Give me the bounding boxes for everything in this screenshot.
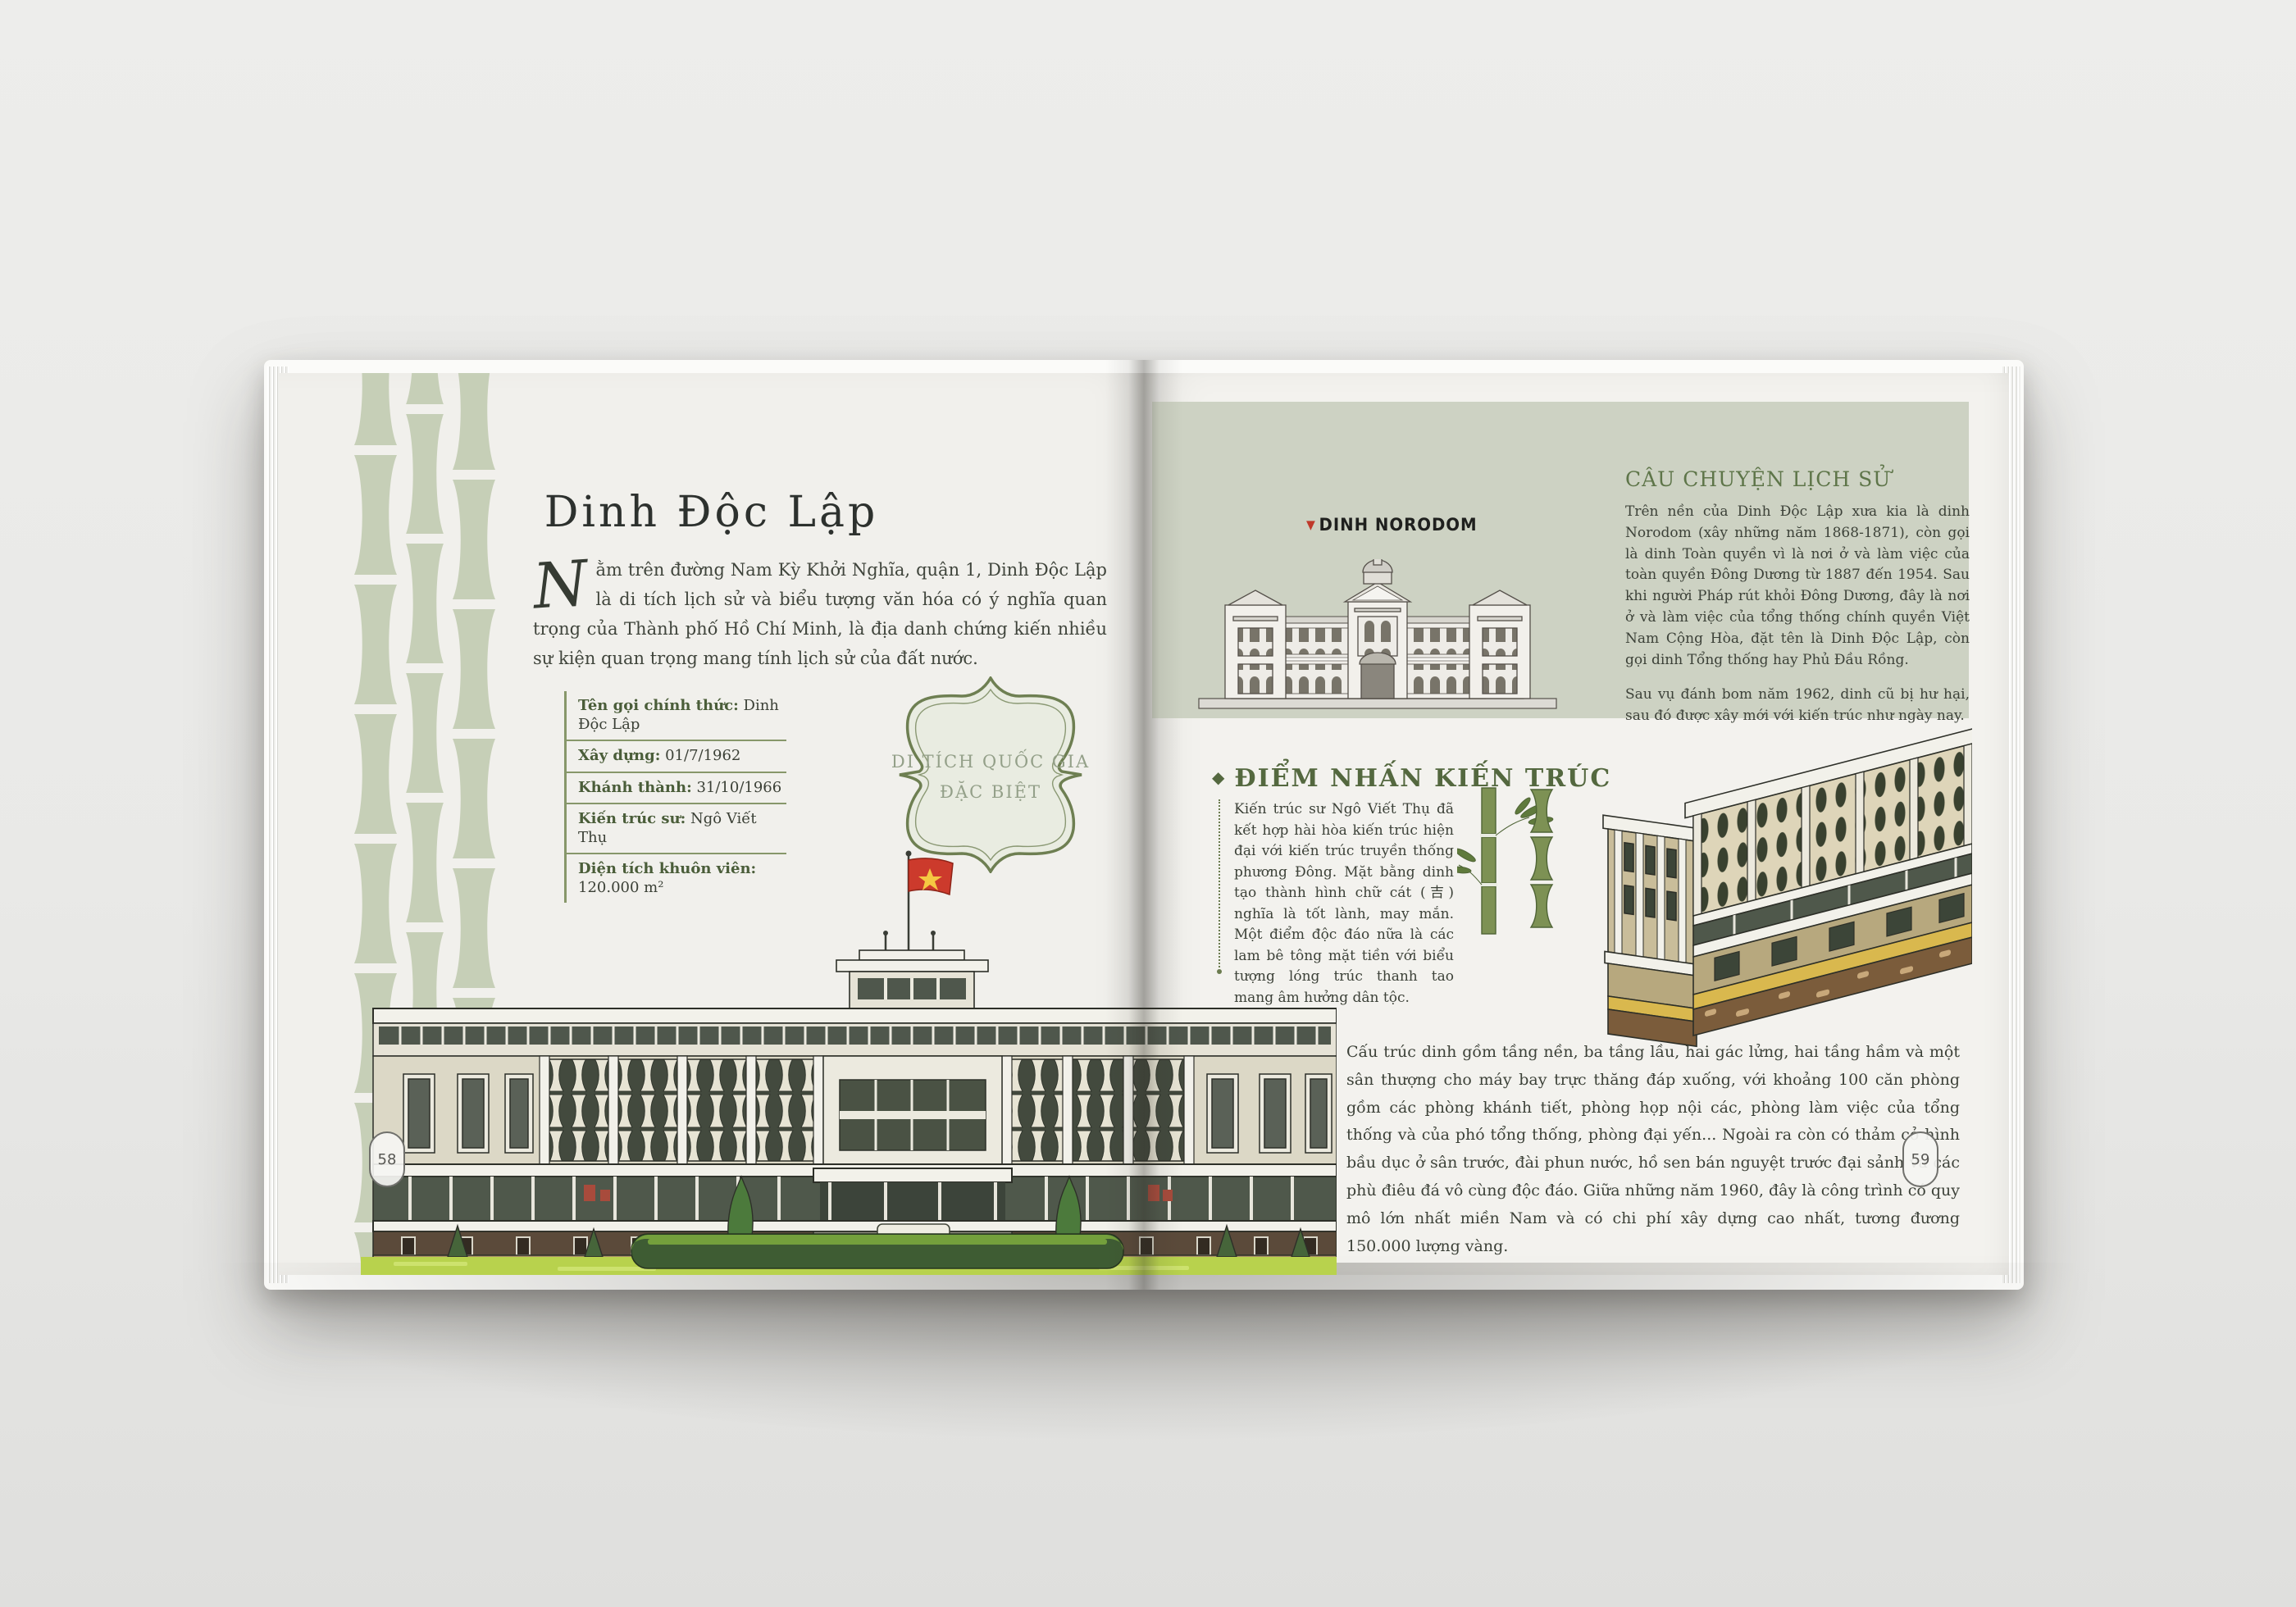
page-number-left: 58 xyxy=(369,1131,405,1187)
independence-palace-illustration xyxy=(361,840,1337,1275)
drop-cap: N xyxy=(531,553,598,610)
fact-row: Tên gọi chính thức: Dinh Độc Lập xyxy=(567,691,786,741)
desk-background: Dinh Độc Lập Nằm trên đường Nam Kỳ Khởi … xyxy=(0,0,2296,1607)
intro-paragraph: Nằm trên đường Nam Kỳ Khởi Nghĩa, quận 1… xyxy=(533,555,1107,673)
structure-paragraph: Cấu trúc dinh gồm tầng nền, ba tầng lầu,… xyxy=(1346,1039,1960,1261)
history-paragraph-2: Sau vụ đánh bom năm 1962, dinh cũ bị hư … xyxy=(1625,685,1970,727)
page-number-right: 59 xyxy=(1902,1131,1938,1187)
norodom-palace-illustration xyxy=(1195,559,1560,715)
history-heading: CÂU CHUYỆN LỊCH SỬ xyxy=(1625,467,1891,491)
bamboo-motif-illustration xyxy=(1457,785,1564,937)
norodom-caption: ▼DINH NORODOM xyxy=(1306,515,1478,535)
intro-text: ằm trên đường Nam Kỳ Khởi Nghĩa, quận 1,… xyxy=(533,560,1107,668)
page-title: Dinh Độc Lập xyxy=(279,488,1144,537)
fact-row: Xây dựng: 01/7/1962 xyxy=(567,741,786,773)
history-paragraph-1: Trên nền của Dinh Độc Lập xưa kia là din… xyxy=(1625,502,1970,671)
diamond-bullet-icon: ◆ xyxy=(1212,767,1226,787)
palace-perspective-illustration xyxy=(1560,724,1972,1052)
fact-row: Khánh thành: 31/10/1966 xyxy=(567,773,786,805)
badge-line-2: ĐẶC BIỆT xyxy=(887,777,1094,808)
open-book: Dinh Độc Lập Nằm trên đường Nam Kỳ Khởi … xyxy=(279,373,2009,1275)
history-panel: ▼DINH NORODOM xyxy=(1152,402,1969,718)
triangle-marker-icon: ▼ xyxy=(1306,517,1316,532)
badge-text: DI TÍCH QUỐC GIA ĐẶC BIỆT xyxy=(887,747,1094,808)
badge-line-1: DI TÍCH QUỐC GIA xyxy=(887,747,1094,777)
